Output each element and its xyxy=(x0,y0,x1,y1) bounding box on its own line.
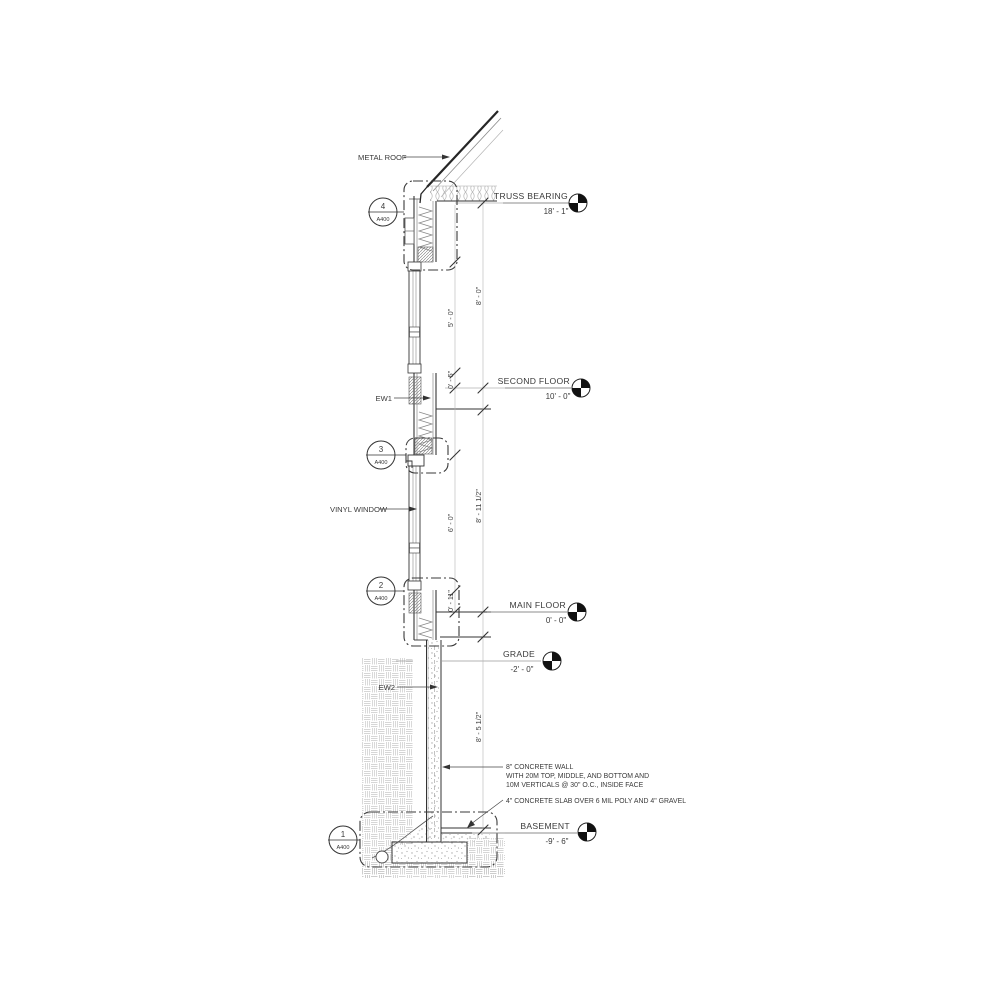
metal-roof-label: METAL ROOF xyxy=(358,153,407,162)
wall-note-line1: 8" CONCRETE WALL xyxy=(506,764,573,771)
leader-arrow-icon xyxy=(467,820,475,828)
level-name: BASEMENT xyxy=(520,821,570,831)
vinyl-window-label: VINYL WINDOW xyxy=(330,505,388,514)
callout-2: 2 A400 xyxy=(366,577,404,605)
slab-note: 4" CONCRETE SLAB OVER 6 MIL POLY AND 4" … xyxy=(506,798,686,805)
callout-4: 4 A400 xyxy=(368,198,404,226)
dim-8-11-half: 8' - 11 1/2" xyxy=(474,489,483,523)
level-target-icon xyxy=(543,652,561,670)
callout-3: 3 A400 xyxy=(366,441,406,469)
level-grade: GRADE -2' - 0" xyxy=(441,649,561,674)
dim-0-5: 0' - 5" xyxy=(446,370,455,389)
drain-tile xyxy=(376,851,388,863)
dim-6-0: 6' - 0" xyxy=(446,513,455,532)
leader-arrow-icon xyxy=(423,396,431,401)
callout-sheet: A400 xyxy=(374,596,387,602)
level-name: TRUSS BEARING xyxy=(494,191,568,201)
wall-note-line3: 10M VERTICALS @ 30" O.C., INSIDE FACE xyxy=(506,782,644,789)
exterior-wall xyxy=(405,196,436,640)
level-elevation: -2' - 0" xyxy=(510,665,533,674)
callout-sheet: A400 xyxy=(374,460,387,466)
wall-section-drawing: TRUSS BEARING 18' - 1" SECOND FLOOR 10' … xyxy=(0,0,1000,1000)
callout-1: 1 A400 xyxy=(328,826,360,854)
callout-number: 4 xyxy=(381,202,386,211)
level-name: MAIN FLOOR xyxy=(510,600,566,610)
dim-5-0: 5' - 0" xyxy=(446,308,455,327)
level-second-floor: SECOND FLOOR 10' - 0" xyxy=(445,376,590,401)
callout-sheet: A400 xyxy=(336,845,349,851)
level-elevation: -9' - 6" xyxy=(545,837,568,846)
level-target-icon xyxy=(569,194,587,212)
annotation-slab-note: 4" CONCRETE SLAB OVER 6 MIL POLY AND 4" … xyxy=(467,798,686,828)
dim-8-0: 8' - 0" xyxy=(474,286,483,305)
annotation-vinyl-window: VINYL WINDOW xyxy=(330,505,417,514)
level-elevation: 18' - 1" xyxy=(544,207,569,216)
ew2-label: EW2 xyxy=(379,683,395,692)
level-main-floor: MAIN FLOOR 0' - 0" xyxy=(487,600,586,625)
annotation-ew1: EW1 xyxy=(376,394,431,403)
dim-8-5-half: 8' - 5 1/2" xyxy=(474,711,483,742)
leader-arrow-icon xyxy=(442,155,450,160)
window-meeting-rail xyxy=(410,327,420,332)
level-elevation: 10' - 0" xyxy=(546,392,571,401)
drawing-sheet: TRUSS BEARING 18' - 1" SECOND FLOOR 10' … xyxy=(0,0,1000,1000)
callout-number: 2 xyxy=(379,581,384,590)
callout-number: 3 xyxy=(379,445,384,454)
ew1-label: EW1 xyxy=(376,394,392,403)
annotation-metal-roof: METAL ROOF xyxy=(358,153,450,162)
level-target-icon xyxy=(568,603,586,621)
level-name: SECOND FLOOR xyxy=(498,376,570,386)
level-target-icon xyxy=(572,379,590,397)
dimension-chains: 8' - 0" 5' - 0" 0' - 5" 8' - 11 1/2" 6' … xyxy=(446,198,488,835)
level-elevation: 0' - 0" xyxy=(546,616,567,625)
level-target-icon xyxy=(578,823,596,841)
vinyl-window xyxy=(406,455,424,590)
dim-0-11: 0' - 11" xyxy=(446,590,455,612)
annotation-concrete-wall-note: 8" CONCRETE WALL WITH 20M TOP, MIDDLE, A… xyxy=(442,764,649,789)
level-name: GRADE xyxy=(503,649,535,659)
wall-note-line2: WITH 20M TOP, MIDDLE, AND BOTTOM AND xyxy=(506,773,649,780)
window-meeting-rail xyxy=(410,543,420,548)
upper-window xyxy=(408,262,421,373)
callout-number: 1 xyxy=(341,830,346,839)
callout-sheet: A400 xyxy=(376,217,389,223)
